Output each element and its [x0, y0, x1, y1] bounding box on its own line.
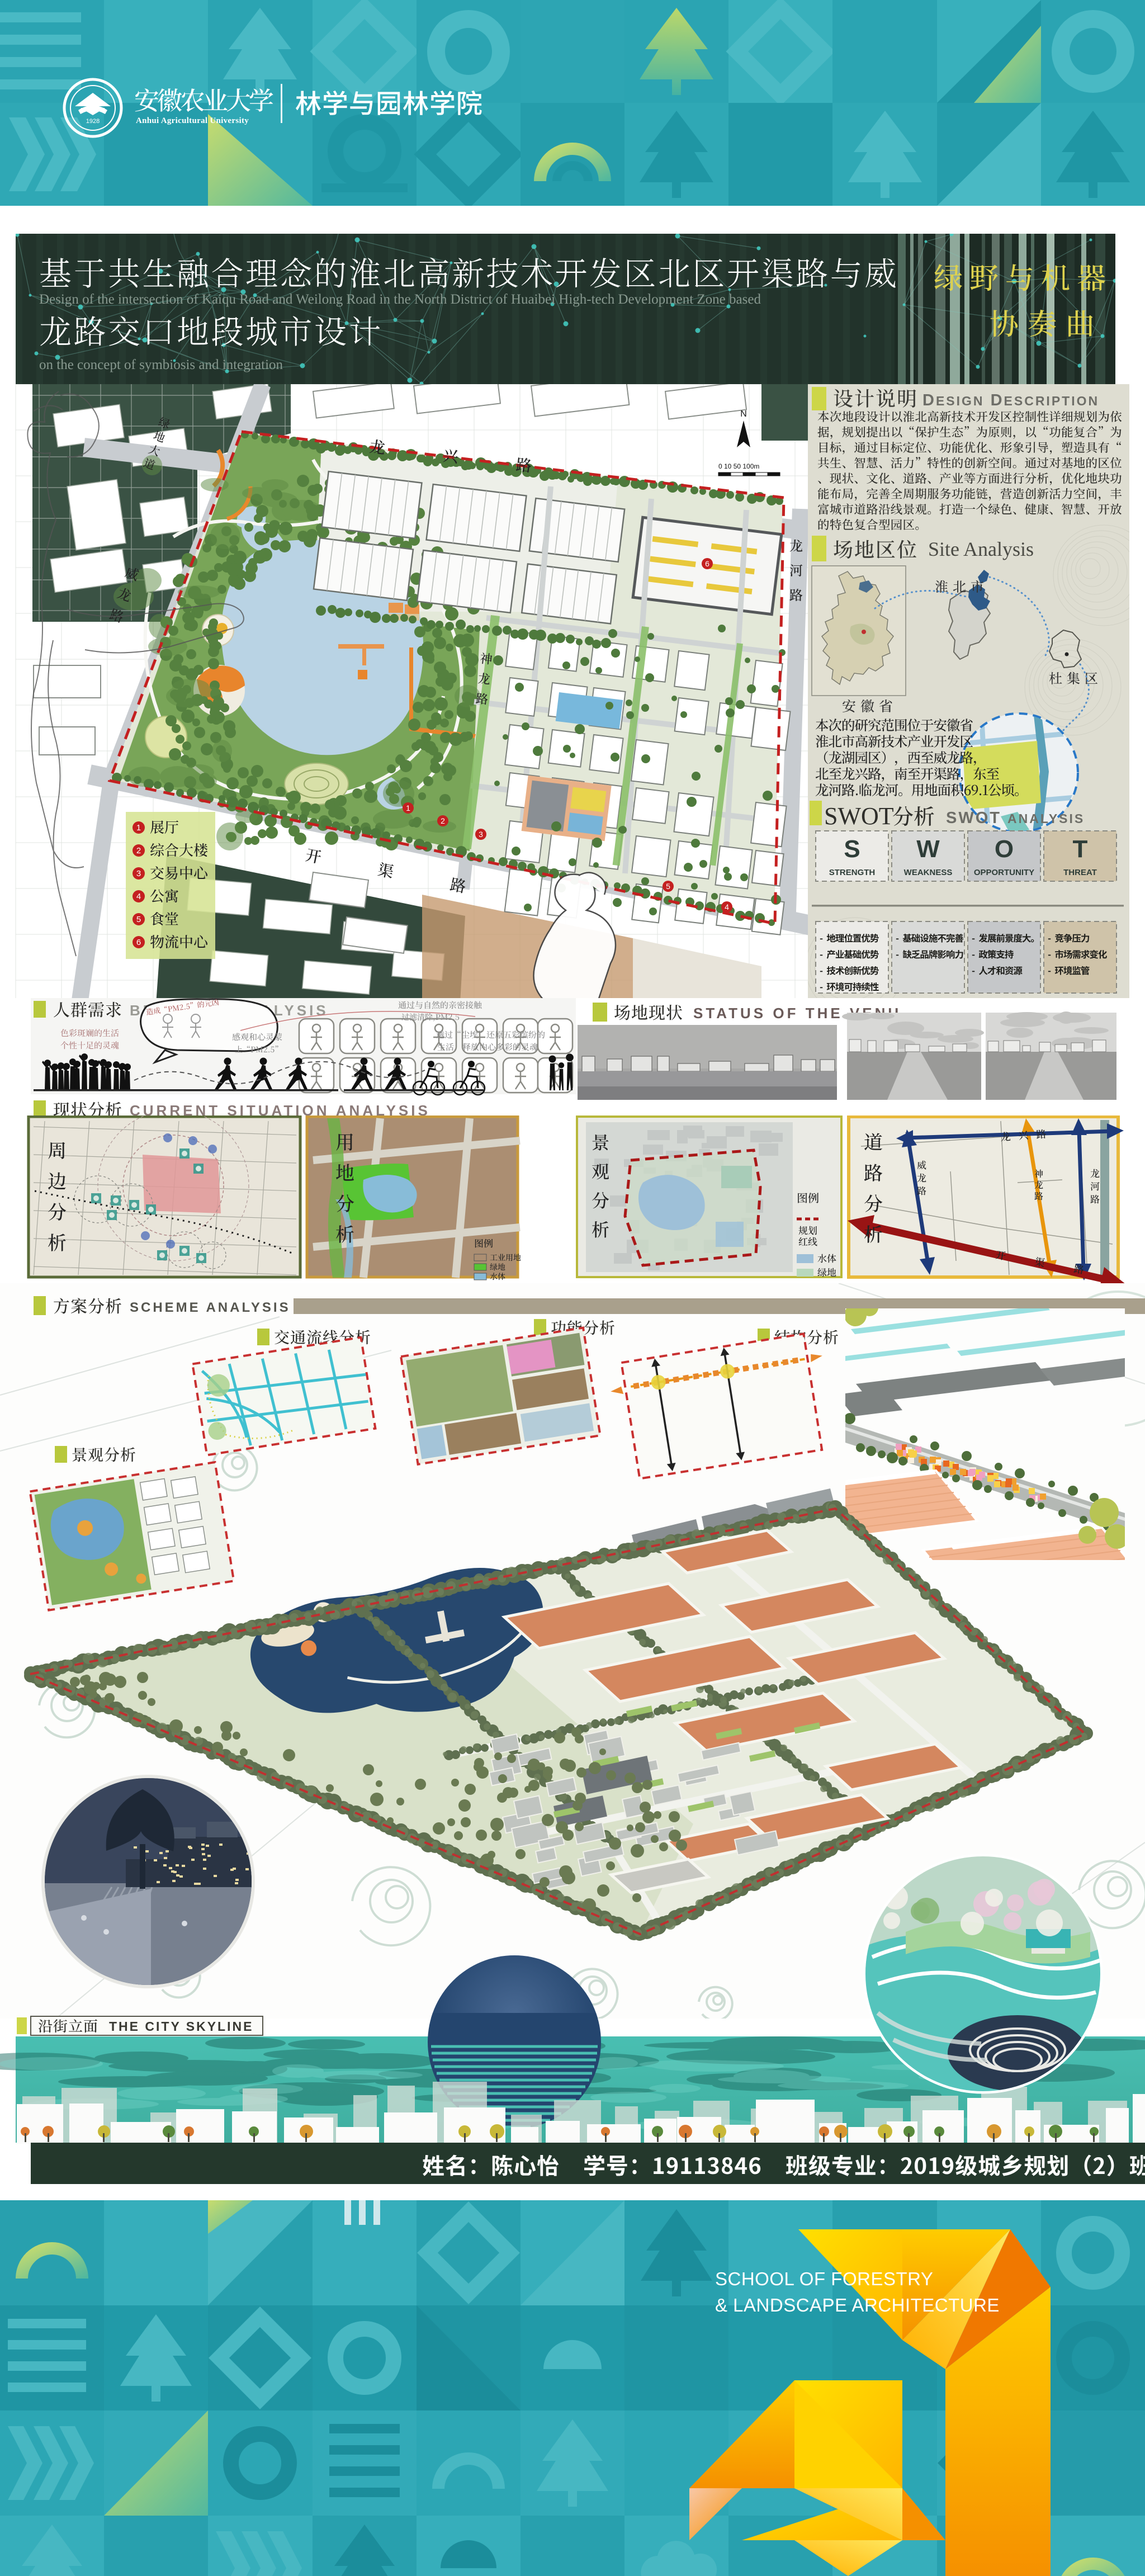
svg-text:STRENGTH: STRENGTH: [829, 868, 876, 877]
svg-text:SCHEME ANALYSIS: SCHEME ANALYSIS: [130, 1300, 291, 1315]
svg-text:T: T: [1073, 835, 1088, 863]
svg-text:DESIGN DESCRIPTION: DESIGN DESCRIPTION: [922, 391, 1099, 409]
svg-text:THE CITY SKYLINE: THE CITY SKYLINE: [109, 2019, 253, 2034]
svg-text:3: 3: [136, 869, 141, 878]
svg-text:SCHOOL OF FORESTRY: SCHOOL OF FORESTRY: [715, 2268, 933, 2289]
svg-text:0 10 50 100m: 0 10 50 100m: [718, 462, 759, 470]
svg-text:S: S: [844, 835, 860, 863]
svg-text:6: 6: [136, 938, 141, 947]
svg-text:2: 2: [441, 816, 445, 825]
svg-text:on the concept of symbiosis: on the concept of symbiosis and integrat…: [39, 357, 283, 372]
svg-text:4: 4: [725, 902, 729, 911]
svg-text:N: N: [740, 409, 747, 419]
svg-text:W: W: [916, 835, 940, 863]
svg-text:O: O: [995, 835, 1014, 863]
svg-text:3: 3: [479, 830, 483, 839]
svg-text:SWOT ANALYSIS: SWOT ANALYSIS: [946, 809, 1085, 827]
svg-text:& LANDSCAPE ARCHITECTURE: & LANDSCAPE ARCHITECTURE: [715, 2295, 1000, 2315]
svg-text:Design of the intersection of: Design of the intersection of Kaiqu Road…: [39, 292, 761, 307]
svg-text:Anhui Agricultural Universit: Anhui Agricultural University: [136, 116, 249, 125]
svg-text:2: 2: [136, 846, 141, 855]
svg-text:SWOT: SWOT: [824, 802, 894, 830]
svg-text:Site Analysis: Site Analysis: [928, 538, 1034, 560]
svg-text:6: 6: [705, 559, 709, 568]
svg-text:1: 1: [406, 803, 410, 812]
svg-text:WEAKNESS: WEAKNESS: [904, 868, 953, 877]
svg-text:THREAT: THREAT: [1063, 868, 1097, 877]
svg-text:OPPORTUNITY: OPPORTUNITY: [974, 868, 1034, 877]
svg-text:4: 4: [136, 892, 141, 901]
svg-text:1: 1: [136, 823, 141, 833]
svg-text:5: 5: [666, 882, 670, 891]
svg-text:1928: 1928: [86, 118, 100, 125]
svg-text:5: 5: [136, 915, 141, 924]
